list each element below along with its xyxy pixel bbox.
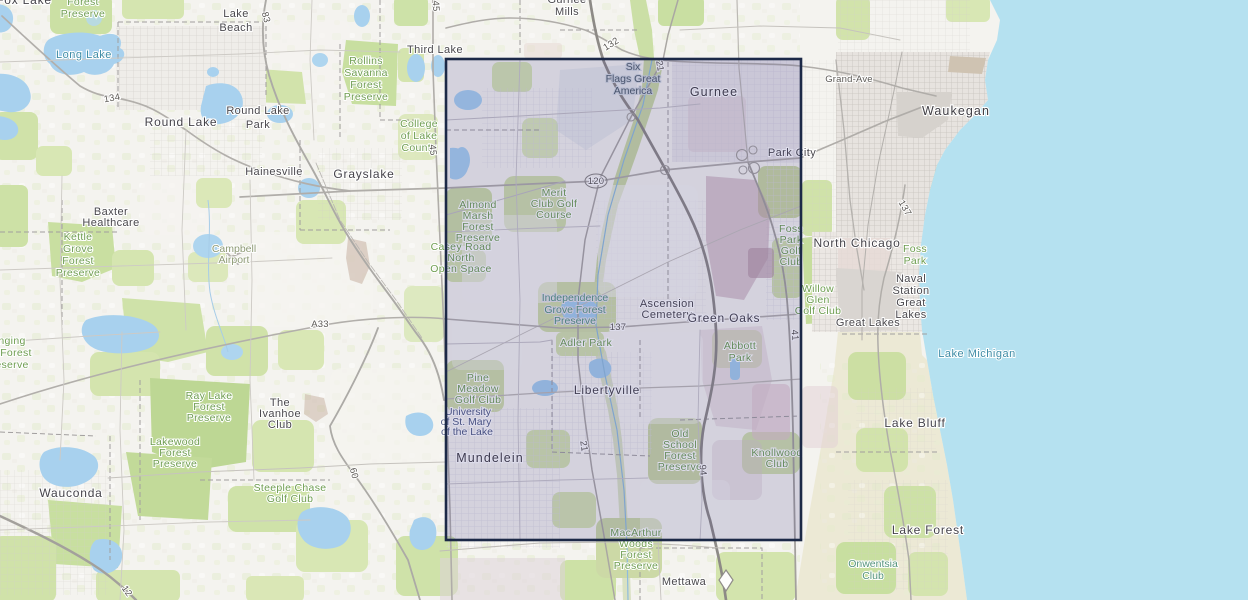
svg-text:Lake: Lake — [223, 8, 248, 20]
svg-text:Hainesville: Hainesville — [245, 166, 303, 178]
svg-text:Beach: Beach — [219, 22, 252, 34]
svg-text:Round Lake: Round Lake — [145, 115, 218, 129]
svg-text:Healthcare: Healthcare — [82, 217, 139, 229]
svg-text:nging: nging — [0, 335, 26, 347]
svg-text:Long Lake: Long Lake — [56, 49, 112, 61]
svg-text:Preserve: Preserve — [614, 560, 658, 572]
svg-text:Third Lake: Third Lake — [407, 44, 463, 56]
svg-text:eserve: eserve — [0, 359, 29, 371]
svg-text:Preserve: Preserve — [61, 8, 105, 20]
svg-text:Great: Great — [896, 297, 926, 309]
svg-text:Wauconda: Wauconda — [39, 486, 102, 500]
svg-text:Park: Park — [246, 119, 270, 131]
svg-text:Round Lake: Round Lake — [226, 105, 289, 117]
svg-text:College: College — [400, 118, 438, 130]
svg-text:Forest: Forest — [62, 255, 94, 267]
svg-text:Onwentsia: Onwentsia — [848, 558, 898, 570]
svg-text:Savanna: Savanna — [344, 67, 388, 79]
svg-text:Preserve: Preserve — [187, 412, 231, 424]
svg-text:Grayslake: Grayslake — [333, 167, 394, 181]
svg-text:Preserve: Preserve — [344, 91, 388, 103]
svg-text:Forest: Forest — [0, 347, 32, 359]
svg-text:Lake Forest: Lake Forest — [892, 523, 964, 537]
svg-text:Fox Lake: Fox Lake — [0, 0, 52, 7]
svg-text:Grand-Ave: Grand-Ave — [825, 74, 873, 85]
svg-text:Lake Michigan: Lake Michigan — [938, 348, 1015, 360]
svg-text:North Chicago: North Chicago — [813, 236, 900, 250]
svg-text:45: 45 — [427, 144, 439, 156]
svg-text:Forest: Forest — [350, 79, 382, 91]
svg-text:Kettle: Kettle — [64, 231, 93, 243]
svg-text:Lake Bluff: Lake Bluff — [884, 416, 945, 430]
svg-text:Waukegan: Waukegan — [922, 104, 990, 118]
svg-text:Great Lakes: Great Lakes — [836, 317, 900, 329]
svg-text:Foss: Foss — [903, 243, 927, 255]
svg-text:Preserve: Preserve — [153, 458, 197, 470]
svg-text:Mills: Mills — [555, 6, 579, 18]
svg-text:Rollins: Rollins — [349, 55, 383, 67]
svg-text:Club: Club — [268, 419, 292, 431]
svg-text:Golf Club: Golf Club — [267, 493, 313, 505]
svg-text:Mettawa: Mettawa — [662, 576, 707, 588]
svg-text:Airport: Airport — [219, 254, 250, 266]
svg-text:of Lake: of Lake — [401, 130, 438, 142]
svg-text:45: 45 — [430, 0, 441, 11]
svg-text:Station: Station — [892, 285, 929, 297]
svg-text:Forest: Forest — [67, 0, 99, 8]
svg-text:Club: Club — [862, 570, 884, 582]
svg-text:Park: Park — [904, 255, 927, 267]
svg-text:Naval: Naval — [896, 273, 926, 285]
svg-text:Preserve: Preserve — [56, 267, 100, 279]
svg-text:Grove: Grove — [63, 243, 93, 255]
svg-text:A33: A33 — [311, 319, 329, 330]
